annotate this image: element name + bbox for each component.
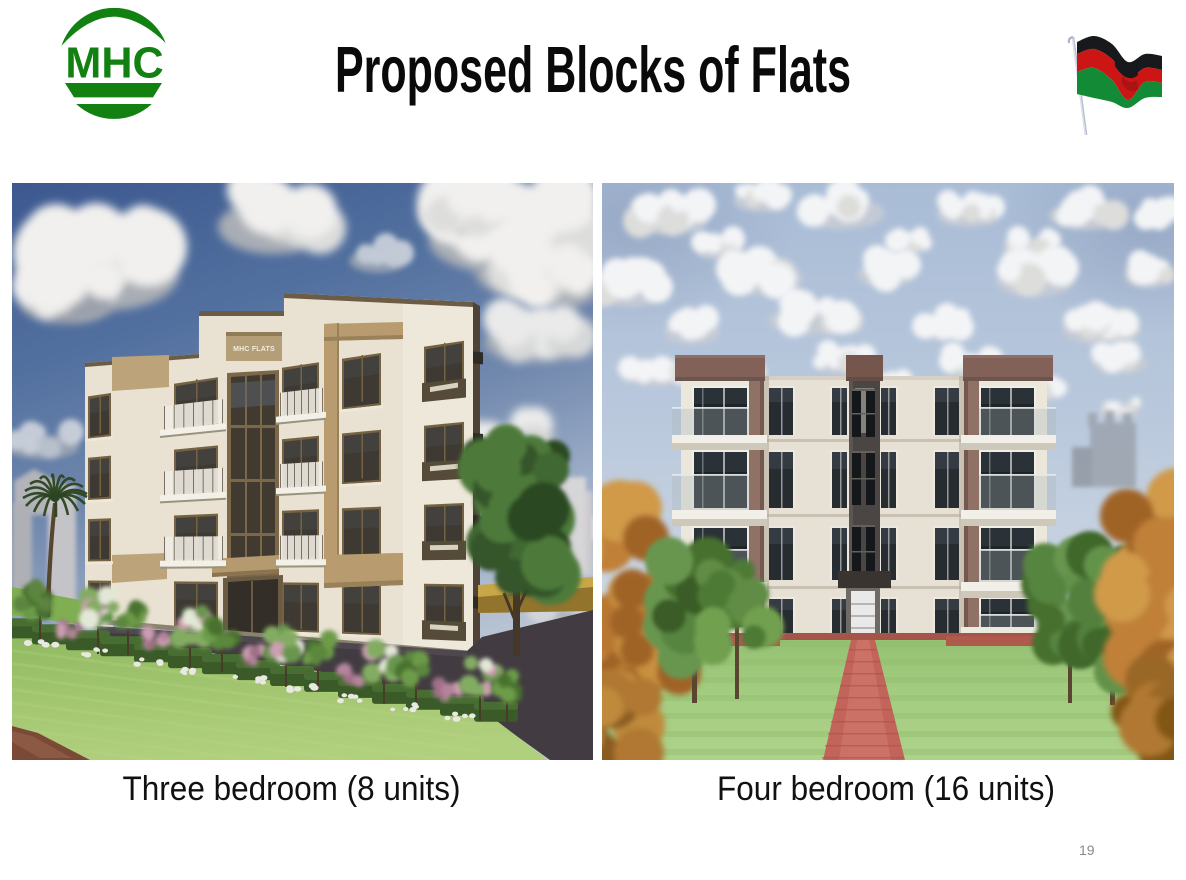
svg-text:MHC: MHC bbox=[65, 39, 163, 87]
svg-text:MHC FLATS: MHC FLATS bbox=[233, 346, 275, 353]
